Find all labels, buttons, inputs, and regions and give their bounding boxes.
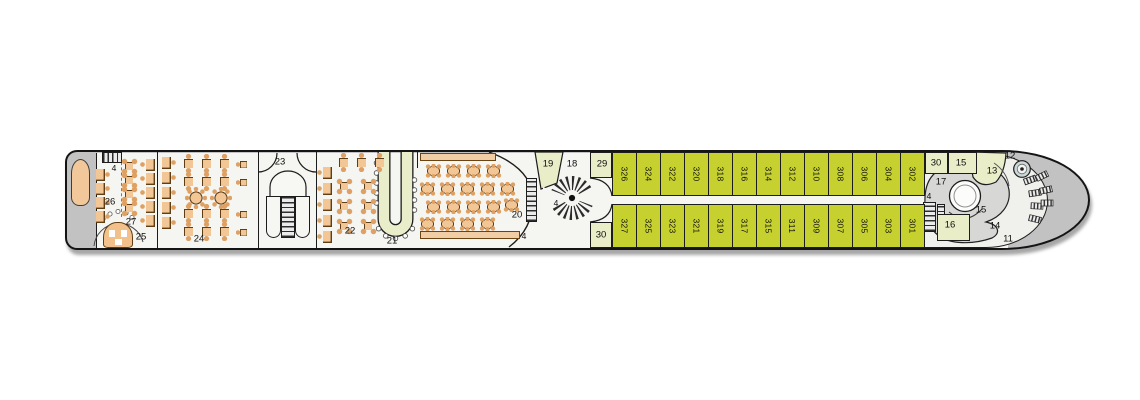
deck-plan: 326324322320318316314312310308306304302 … [0, 0, 1140, 400]
label-room-30-mid: 30 [596, 230, 607, 240]
label-room-13: 13 [987, 166, 998, 176]
table-group [336, 178, 353, 195]
cabin-row-bottom: 327325323321319317315311309307305303301 [612, 204, 925, 248]
chair [317, 166, 332, 179]
dining-table [183, 222, 194, 241]
chair [317, 198, 332, 211]
chair [161, 156, 176, 169]
dining-table [219, 154, 230, 173]
dining-table [219, 222, 230, 241]
buffet-counter-top [420, 153, 496, 161]
chair [317, 214, 332, 227]
side-table [236, 178, 248, 187]
table-group [360, 178, 377, 195]
cabin-317: 317 [732, 204, 757, 248]
restaurant-table [444, 200, 463, 214]
cabin-306: 306 [852, 152, 877, 196]
chair [140, 214, 155, 227]
label-booth-25: 25 [136, 232, 147, 242]
table-group [121, 200, 138, 217]
dining-table [338, 153, 349, 172]
cabin-327: 327 [612, 204, 637, 248]
cabin-305: 305 [852, 204, 877, 248]
cabin-326: 326 [612, 152, 637, 196]
restaurant-table [458, 217, 477, 231]
cabin-320: 320 [684, 152, 709, 196]
restaurant-table [458, 182, 477, 196]
lobby-stair-lobe-left [266, 196, 281, 238]
cabin-311: 311 [780, 204, 805, 248]
cabin-302: 302 [900, 152, 925, 196]
label-room-16: 16 [945, 220, 956, 230]
chair [140, 186, 155, 199]
dining-table [374, 153, 385, 172]
side-table [236, 210, 248, 219]
side-table [236, 160, 248, 169]
label-room-14: 14 [990, 221, 1001, 231]
label-bar-21: 21 [387, 236, 398, 246]
cabin-308: 308 [828, 152, 853, 196]
label-seating-26: 26 [105, 197, 116, 207]
dining-table [183, 204, 194, 223]
restaurant-table [418, 217, 437, 231]
restaurant-table [484, 200, 503, 214]
table-group [336, 198, 353, 215]
restaurant-table [418, 182, 437, 196]
cabin-310: 310 [804, 152, 829, 196]
lobby-staircase-icon [281, 196, 295, 238]
table-group [360, 198, 377, 215]
cabin-301: 301 [900, 204, 925, 248]
buffet-counter-bottom [420, 231, 520, 239]
dining-table [201, 204, 212, 223]
chair [161, 186, 176, 199]
label-stairs-stern: 4 [112, 164, 117, 173]
label-room-29: 29 [597, 159, 608, 169]
cabin-315: 315 [756, 204, 781, 248]
chair [140, 200, 155, 213]
cabin-307: 307 [828, 204, 853, 248]
restaurant-table [438, 217, 457, 231]
label-room-19: 19 [543, 159, 554, 169]
cabin-row-top: 326324322320318316314312310308306304302 [612, 152, 925, 196]
cabin-324: 324 [636, 152, 661, 196]
label-stairs-landing: 4 [554, 199, 559, 208]
label-walkway-11: 11 [1003, 234, 1013, 244]
label-lobby-23: 23 [275, 157, 286, 167]
chair [161, 201, 176, 214]
wall-bar-restaurant [417, 152, 418, 168]
stern-staircase-icon [102, 152, 122, 163]
restaurant-table [478, 182, 497, 196]
dining-table [183, 154, 194, 173]
chair [161, 216, 176, 229]
cabin-321: 321 [684, 204, 709, 248]
chair [95, 182, 110, 195]
chair [140, 172, 155, 185]
chair [317, 182, 332, 195]
cabin-323: 323 [660, 204, 685, 248]
restaurant-table [478, 217, 497, 231]
restaurant-table [438, 182, 457, 196]
label-tables-27: 27 [126, 217, 137, 227]
cabin-303: 303 [876, 204, 901, 248]
cabin-316: 316 [732, 152, 757, 196]
cabin-304: 304 [876, 152, 901, 196]
chair [95, 210, 110, 223]
cabin-319: 319 [708, 204, 733, 248]
cabin-318: 318 [708, 152, 733, 196]
cabin-325: 325 [636, 204, 661, 248]
restaurant-table [444, 164, 463, 178]
restaurant-table [464, 200, 483, 214]
restaurant-table [424, 164, 443, 178]
label-restaurant-20: 20 [512, 210, 523, 220]
cabin-312: 312 [780, 152, 805, 196]
dining-table [201, 154, 212, 173]
restaurant-staircase-icon [526, 178, 537, 222]
stern-tender-icon [71, 159, 90, 206]
label-stairs-restaurant: 4 [522, 232, 527, 241]
restaurant-table [424, 200, 443, 214]
label-room-18: 18 [567, 159, 578, 169]
dining-table [219, 204, 230, 223]
side-table [236, 228, 248, 237]
label-stairs-bow: 4 [927, 192, 932, 201]
restaurant-table [464, 164, 483, 178]
restaurant-table [498, 182, 517, 196]
table-group [360, 218, 377, 235]
label-room-15-bow: 15 [956, 158, 967, 168]
label-tables-22: 22 [345, 226, 356, 236]
cabin-309: 309 [804, 204, 829, 248]
label-room-17: 17 [936, 177, 947, 187]
chair [317, 230, 332, 243]
cabin-322: 322 [660, 152, 685, 196]
chair [95, 168, 110, 181]
wall-lobby-left [258, 152, 259, 248]
dining-table [356, 153, 367, 172]
wall-lounge [157, 152, 158, 248]
label-room-30-bow: 30 [931, 158, 942, 168]
label-pool-15: 15 [976, 205, 987, 215]
cabin-314: 314 [756, 152, 781, 196]
chair [140, 158, 155, 171]
chair [161, 171, 176, 184]
lobby-stair-lobe-right [295, 196, 310, 238]
label-lounge-24: 24 [194, 234, 205, 244]
restaurant-table [484, 164, 503, 178]
label-capstan-12: 12 [1005, 151, 1016, 161]
